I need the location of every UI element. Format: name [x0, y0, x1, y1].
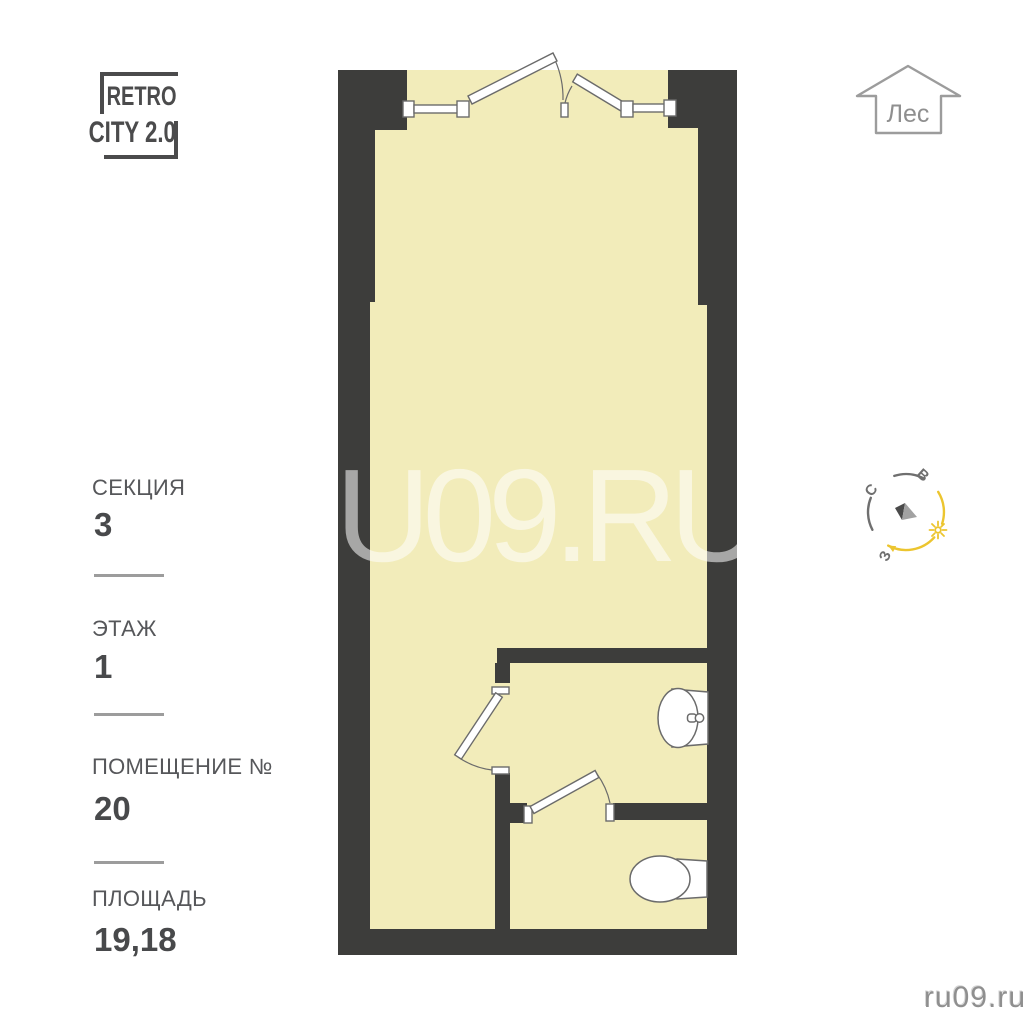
sink-fixture: [658, 689, 708, 748]
floor-label: ЭТАЖ: [92, 618, 157, 640]
window-jamb: [561, 103, 568, 117]
window-mullion: [664, 100, 676, 116]
window-pane: [633, 104, 666, 112]
door-jamb: [492, 687, 509, 694]
window-mullion: [457, 101, 469, 117]
sun-icon: [930, 522, 947, 539]
divider: [94, 713, 164, 716]
divider: [94, 861, 164, 864]
compass-north-label: С: [861, 481, 881, 500]
divider: [94, 574, 164, 577]
window-mullion: [621, 101, 633, 117]
compass-arc: [868, 498, 872, 530]
compass-rose: С В З: [840, 440, 990, 590]
unit-number-label: ПОМЕЩЕНИЕ №: [92, 756, 273, 778]
watermark: RU09.RU: [248, 450, 757, 582]
forest-direction-arrow: Лес: [845, 55, 975, 145]
area-label: ПЛОЩАДЬ: [92, 888, 207, 910]
window-pane: [414, 105, 458, 113]
door-jamb: [606, 804, 614, 821]
section-value: 3: [94, 508, 112, 541]
compass-needle-icon: [895, 503, 917, 520]
forest-label: Лес: [887, 100, 930, 128]
section-label: СЕКЦИЯ: [92, 477, 185, 499]
sun-path-arc: [938, 492, 944, 524]
toilet-fixture: [630, 856, 707, 902]
site-credit: ru09.ru: [924, 981, 1024, 1015]
window-mullion: [403, 101, 414, 117]
compass-east-label: В: [913, 465, 933, 485]
floor-value: 1: [94, 650, 112, 683]
unit-number-value: 20: [94, 792, 131, 825]
door-jamb: [492, 767, 509, 774]
area-value: 19,18: [94, 923, 177, 956]
faucet-icon: [695, 714, 703, 722]
floorplan-page: RETRO CITY 2.0 Лес СЕКЦИЯ 3 ЭТАЖ 1 ПОМЕЩ…: [0, 0, 1024, 1024]
